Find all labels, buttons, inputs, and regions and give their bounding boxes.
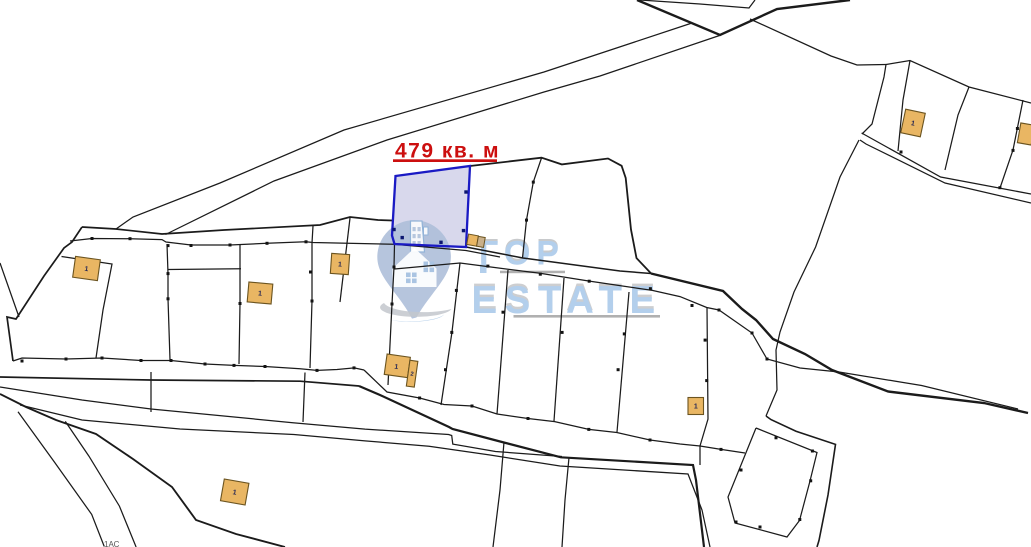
svg-text:1АС: 1АС [104, 540, 120, 547]
svg-text:479 кв. м: 479 кв. м [395, 140, 500, 163]
svg-text:1: 1 [338, 261, 342, 268]
svg-text:1: 1 [694, 404, 698, 411]
svg-text:1: 1 [258, 290, 263, 297]
